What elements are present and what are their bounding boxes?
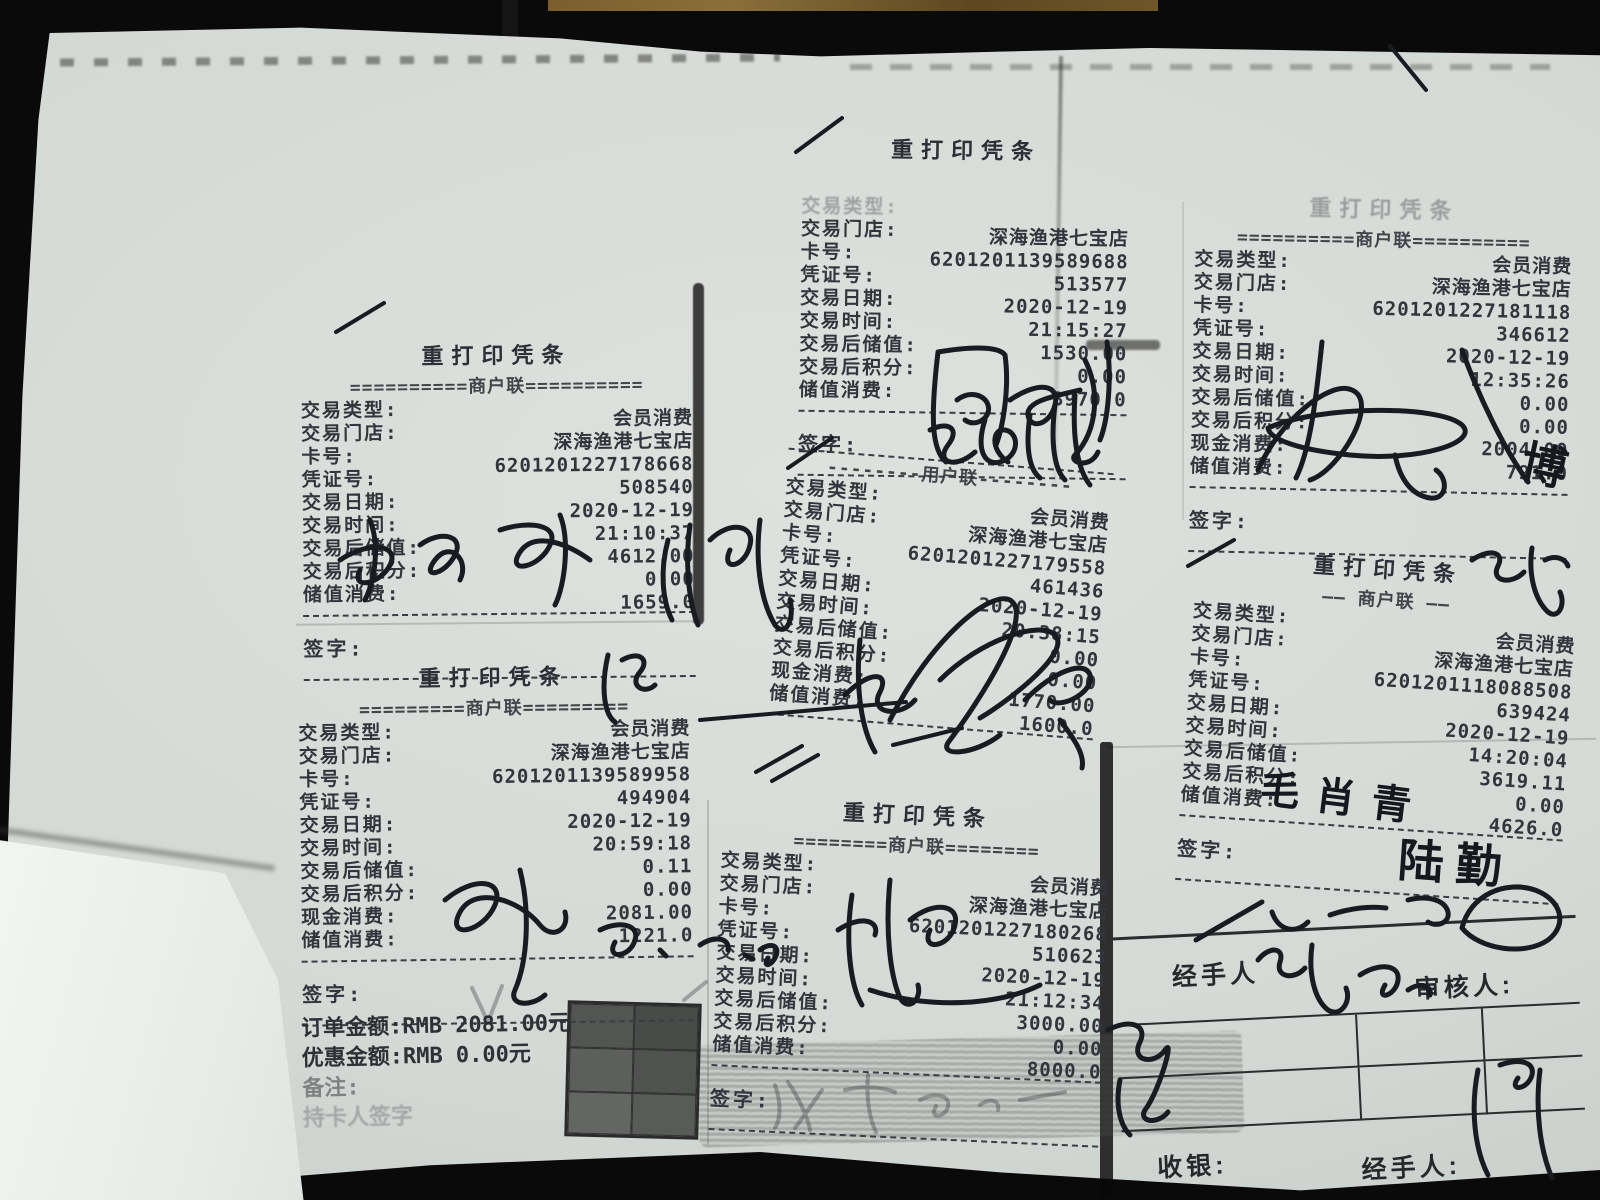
receipt-field-label: 储值消费: [303, 583, 401, 607]
receipt-field-label: 交易日期: [302, 491, 400, 515]
grid-cell [1357, 1008, 1485, 1067]
receipt-field-label: 交易日期: [300, 813, 398, 837]
photocopy-smear [850, 64, 1550, 70]
receipt-row: 储值消费:1221.0 [301, 924, 693, 952]
receipt-field-label: 交易门店: [301, 422, 399, 446]
receipt-field-label: 交易时间: [302, 514, 400, 538]
receipt-field-label: 交易后储值: [799, 333, 918, 358]
auditor-label: 审核人: [1414, 965, 1515, 1006]
receipt-field-value: 会员消费 [1492, 254, 1572, 279]
receipt-title: 重打印凭条 [802, 131, 1130, 168]
receipt-field-value: 深海渔港七宝店 [989, 226, 1129, 251]
receipt-field-label: 交易后储值: [300, 859, 419, 884]
receipt-copy-label: =========商户联========= [298, 691, 690, 722]
receipt-field-value: 会员消费 [613, 407, 693, 431]
receipt-field-value: 3000.00 [1016, 1012, 1104, 1039]
receipt-field-value: 8000.0 [1026, 1058, 1102, 1084]
receipt-field-label: 交易门店: [801, 218, 899, 242]
receipt-field-value: 0.00 [643, 878, 693, 902]
receipt-field-value: 4612.00 [607, 545, 694, 569]
receipt-field-value: 508540 [619, 476, 694, 500]
sign-label: 签字: [1176, 836, 1239, 864]
receipt-field-label: 交易类型: [1194, 248, 1292, 273]
receipt-row: 交易类型: [801, 195, 1129, 223]
receipt-field-value: 0.00 [645, 568, 695, 592]
receipt-field-value: 深海渔港七宝店 [551, 740, 691, 765]
grid-cell [1482, 1004, 1582, 1062]
receipt-field-value: 12:35:26 [1470, 369, 1570, 394]
receipt-middle-center: --------用户联--------交易类型:会员消费交易门店:深海渔港七宝店… [768, 440, 1115, 741]
receipt-field-value: 2081.00 [606, 901, 693, 925]
receipt-field-value: 21:15:27 [1028, 319, 1128, 343]
receipt-field-value: 1659.0 [620, 591, 695, 615]
receipt-right-top: 重打印凭条==========商户联==========交易类型:会员消费交易门… [1188, 188, 1574, 560]
receipt-divider [302, 955, 694, 962]
receipt-field-label: 储值消费: [1190, 455, 1288, 480]
receipt-field-value: 0.00 [1519, 393, 1569, 417]
receipt-field-label: 卡号: [1193, 294, 1249, 318]
receipt-field-value: 0.00 [1052, 1037, 1103, 1062]
receipt-field-label: 卡号: [801, 241, 857, 265]
receipt-field-value: 2020-12-19 [567, 809, 692, 834]
receipt-field-label: 交易门店: [1194, 271, 1292, 296]
receipt-divider [1190, 486, 1568, 496]
receipt-field-value: 深海渔港七宝店 [1432, 276, 1572, 302]
receipt-copy-label: ==========商户联========== [301, 370, 693, 400]
receipt-field-label: 交易后积分: [799, 356, 918, 381]
slip-seam [1182, 202, 1184, 520]
receipt-field-label: 交易类型: [301, 399, 399, 423]
receipt-field-label: 交易门店: [299, 744, 397, 768]
handler-label: 经手人: [1361, 1146, 1462, 1187]
receipt-field-value: 2020-12-19 [1003, 296, 1128, 321]
receipt-field-value: 2020-12-19 [1446, 345, 1571, 371]
sign-label: 签字: [1189, 508, 1251, 533]
receipt-field-value: 6201201139589958 [492, 763, 691, 789]
receipt-left-top: 重打印凭条==========商户联==========交易类型:会员消费交易门… [300, 336, 696, 681]
receipt-field-label: 储值消费: [301, 928, 399, 952]
photo-of-receipts: 重打印凭条==========商户联==========交易类型:会员消费交易门… [0, 0, 1600, 1200]
receipt-title: 重打印凭条 [300, 336, 692, 372]
receipt-field-label: 交易后积分: [301, 882, 420, 907]
receipt-field-label: 交易后积分: [303, 560, 422, 584]
receipt-field-value: 0.00 [1514, 793, 1565, 819]
sign-label: 签字: [302, 982, 363, 1007]
receipt-field-label: 卡号: [301, 445, 357, 469]
receipt-field-value: 510623 [1032, 943, 1108, 969]
receipt-left-bottom: 重打印凭条=========商户联=========交易类型:会员消费交易门店:… [297, 657, 694, 1026]
receipt-field-value: 0.00 [1077, 366, 1127, 390]
receipt-field-value: 3970.0 [1052, 388, 1127, 412]
receipt-field-label: 储值消费: [799, 379, 897, 403]
receipt-field-value: 21:10:37 [595, 522, 695, 546]
receipt-field-value: 0.11 [642, 855, 692, 879]
receipt-title: 重打印凭条 [297, 657, 689, 694]
receipt-row: 交易类型:会员消费 [301, 396, 693, 423]
receipt-middle-bottom: 重打印凭条========商户联========交易类型:会员消费交易门店:深海… [708, 789, 1113, 1147]
receipt-field-label: 交易后储值: [302, 537, 421, 561]
handler-label: 经手人 [1171, 953, 1260, 993]
receipt-title: 重打印凭条 [1195, 188, 1574, 228]
receipt-field-value: 513577 [1053, 273, 1128, 297]
receipt-field-label: 交易后积分: [1191, 409, 1310, 434]
receipt-field-label: 现金消费: [1190, 432, 1288, 457]
receipt-field-label: 现金消费: [301, 905, 399, 929]
receipt-field-value: 20:59:18 [592, 832, 692, 856]
receipt-field-label: 交易时间: [300, 836, 398, 860]
grid-cell [1485, 1057, 1585, 1115]
receipt-field-label: 凭证号: [717, 918, 794, 944]
sign-label: 签字: [303, 636, 364, 661]
receipt-field-label: 交易日期: [1192, 340, 1290, 365]
approval-table: 经手人 审核人: 收银: 经手人: [1112, 915, 1588, 1195]
receipt-field-value: 2020-12-19 [570, 499, 695, 523]
receipt-field-label: 凭证号: [299, 791, 376, 815]
receipt-field-value: 346612 [1496, 323, 1571, 348]
receipt-field-label: 交易日期: [800, 287, 898, 311]
receipt-field-label: 交易类型: [298, 721, 396, 745]
receipt-field-label: 凭证号: [1193, 317, 1270, 342]
background-shadow [502, 0, 518, 40]
receipt-field-label: 交易后储值: [1191, 386, 1310, 411]
receipt-field-label: 凭证号: [302, 468, 379, 492]
order-summary: 订单金额:RMB 2081.00元 优惠金额:RMB 0.00元 备注: 持卡人… [301, 1006, 733, 1135]
receipt-field-label: 卡号: [718, 895, 774, 920]
cashier-label: 收银: [1156, 1145, 1228, 1184]
handwritten-signature: 陆勤 [1396, 824, 1516, 898]
receipt-field-value: 6201201139589688 [929, 249, 1128, 275]
receipt-field-label: 交易时间: [800, 310, 898, 334]
receipt-field-value: 会员消费 [610, 717, 690, 741]
receipt-row: 储值消费:1659.0 [303, 580, 695, 607]
receipt-field-value: 6201201227181118 [1372, 298, 1571, 325]
wood-table-edge [548, 0, 1158, 11]
receipt-field-value: 深海渔港七宝店 [553, 430, 693, 454]
receipt-field-value: 494904 [617, 786, 692, 810]
receipt-field-label: 交易时间: [1192, 363, 1290, 388]
receipt-right-middle: 重打印凭条—— 商户联 ——交易类型:会员消费交易门店:深海渔港七宝店卡号:62… [1175, 540, 1581, 906]
receipt-field-value: 6201201227178668 [494, 453, 693, 478]
grid-cell [1360, 1061, 1488, 1120]
receipt-field-value: 1221.0 [619, 924, 694, 948]
receipt-field-value: 1530.00 [1040, 342, 1127, 366]
receipt-field-label: 卡号: [299, 768, 355, 792]
receipt-field-label: 凭证号: [800, 264, 877, 288]
receipt-field-label: 交易类型: [801, 195, 899, 219]
receipt-middle-top: 重打印凭条交易类型:交易门店:深海渔港七宝店卡号:620120113958968… [798, 131, 1131, 481]
